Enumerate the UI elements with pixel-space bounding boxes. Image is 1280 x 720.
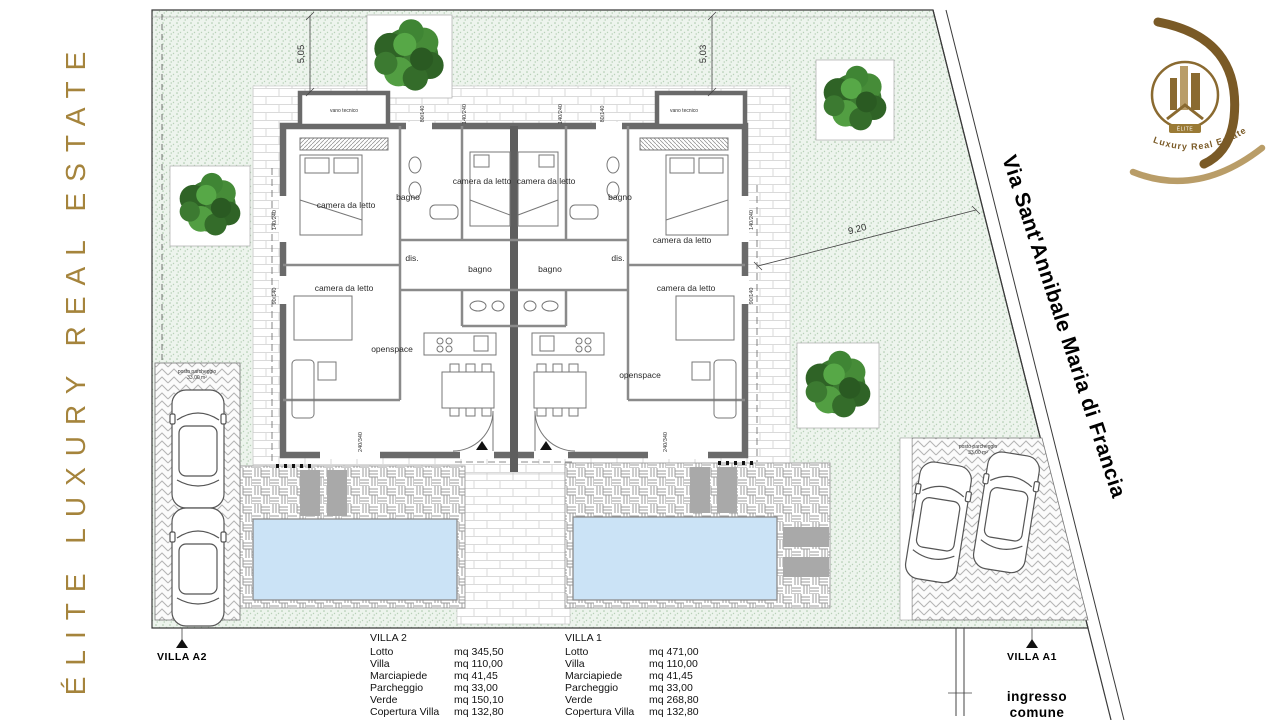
table-row: Lottomq 345,50 <box>370 646 504 658</box>
window-dim: 140/240 <box>462 104 468 124</box>
window-dim: 140/240 <box>558 104 564 124</box>
room-label-technical: vano tecnico <box>670 108 698 114</box>
table-row: Marciapiedemq 41,45 <box>370 670 504 682</box>
car <box>170 508 226 626</box>
window-dim: 140/240 <box>272 210 278 230</box>
table-row: Verdemq 150,10 <box>370 694 504 706</box>
window-dim: 80/140 <box>420 106 426 123</box>
parking-area-value: 33,00 m² <box>187 375 207 381</box>
room-label-bedroom: camera da letto <box>315 283 374 293</box>
agency-logo: ÉLITE Luxury Real Estate <box>1133 22 1262 181</box>
room-label-openspace: openspace <box>371 344 413 354</box>
window-dim: 240/340 <box>358 432 364 452</box>
table-row: Villamq 110,00 <box>565 658 699 670</box>
room-label-bedroom: camera da letto <box>453 176 512 186</box>
table-row: Parcheggiomq 33,00 <box>565 682 699 694</box>
pool-villa2 <box>253 519 457 600</box>
table-title: VILLA 1 <box>565 632 699 644</box>
table-row: Marciapiedemq 41,45 <box>565 670 699 682</box>
common-entrance-label: comune <box>1010 705 1065 720</box>
table-row: Verdemq 268,80 <box>565 694 699 706</box>
window-dim: 140/240 <box>749 210 755 230</box>
villa-a1-marker: VILLA A1 <box>1007 651 1057 663</box>
common-entrance-label: ingresso <box>1007 689 1067 704</box>
table-row: Villamq 110,00 <box>370 658 504 670</box>
table-row: Copertura Villamq 132,80 <box>565 706 699 718</box>
pool-villa1 <box>573 517 777 600</box>
logo-banner-text: ÉLITE <box>1177 126 1194 133</box>
car <box>170 390 226 508</box>
room-label-technical: vano tecnico <box>330 108 358 114</box>
window-dim: 90/140 <box>272 288 278 305</box>
room-label-hall: dis. <box>405 253 418 263</box>
window-dim: 80/140 <box>600 106 606 123</box>
table-row: Copertura Villamq 132,80 <box>370 706 504 718</box>
parking-left: posto parcheggio 33,00 m² <box>155 363 240 626</box>
site-plan-drawing: posto parcheggio 33,00 m² posto parchegg… <box>0 0 1280 720</box>
table-row: Lottomq 471,00 <box>565 646 699 658</box>
dim-label-left: 5,05 <box>296 45 307 64</box>
window-dim: 90/140 <box>749 288 755 305</box>
parking-area-value: 33,00 m² <box>968 450 988 456</box>
site-plan-page: { "brand": { "vertical_text": "ÉLITE LUX… <box>0 0 1280 720</box>
window-dim: 240/340 <box>663 432 669 452</box>
room-label-bedroom: camera da letto <box>653 235 712 245</box>
room-label-bathroom: bagno <box>538 264 562 274</box>
villa2-area-table: VILLA 2 Lottomq 345,50 Villamq 110,00 Ma… <box>370 632 504 718</box>
room-label-bathroom: bagno <box>468 264 492 274</box>
villa1-area-table: VILLA 1 Lottomq 471,00 Villamq 110,00 Ma… <box>565 632 699 718</box>
room-label-bedroom: camera da letto <box>657 283 716 293</box>
room-label-bathroom: bagno <box>608 192 632 202</box>
room-label-bedroom: camera da letto <box>517 176 576 186</box>
villa-a2-marker: VILLA A2 <box>157 651 207 663</box>
room-label-bathroom: bagno <box>396 192 420 202</box>
room-label-openspace: openspace <box>619 370 661 380</box>
table-title: VILLA 2 <box>370 632 504 644</box>
room-label-bedroom: camera da letto <box>317 200 376 210</box>
room-label-hall: dis. <box>611 253 624 263</box>
table-row: Parcheggiomq 33,00 <box>370 682 504 694</box>
dim-label-right: 5,03 <box>698 45 709 64</box>
